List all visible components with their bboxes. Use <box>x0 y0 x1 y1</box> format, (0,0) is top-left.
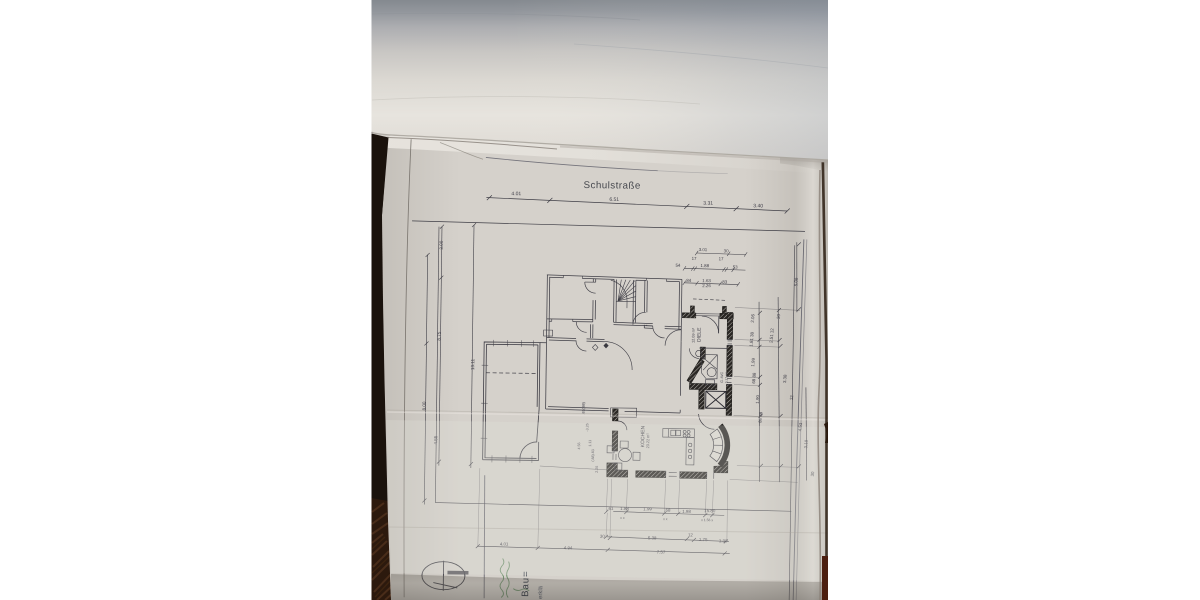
svg-text:4.01: 4.01 <box>511 191 521 197</box>
svg-text:3.40: 3.40 <box>753 203 763 209</box>
svg-text:Schulstraße: Schulstraße <box>583 180 640 192</box>
svg-text:3.01: 3.01 <box>699 247 708 252</box>
svg-text:5.17 m²: 5.17 m² <box>724 372 728 383</box>
svg-text:DIELE: DIELE <box>697 327 703 342</box>
svg-text:8.00: 8.00 <box>422 401 427 410</box>
svg-text:5.09: 5.09 <box>793 277 799 286</box>
svg-text:84: 84 <box>686 278 692 283</box>
svg-text:3.00: 3.00 <box>439 240 444 249</box>
svg-text:G.-WC: G.-WC <box>720 371 724 382</box>
svg-text:1.99: 1.99 <box>755 394 761 403</box>
svg-text:2.06: 2.06 <box>750 313 756 322</box>
svg-text:17: 17 <box>692 256 698 261</box>
svg-text:3.38: 3.38 <box>782 374 788 383</box>
svg-text:.81(.88): .81(.88) <box>582 402 586 414</box>
svg-text:8.75: 8.75 <box>437 331 442 340</box>
svg-text:1.99: 1.99 <box>750 357 756 366</box>
svg-text:17: 17 <box>719 256 725 261</box>
svg-text:13.11: 13.11 <box>470 358 475 370</box>
svg-text:6.51: 6.51 <box>609 197 619 203</box>
svg-text:3.31: 3.31 <box>703 201 713 207</box>
svg-text:83: 83 <box>722 279 728 284</box>
svg-text:.53: .53 <box>731 264 738 269</box>
svg-text:30: 30 <box>724 248 730 253</box>
svg-text:1.88: 1.88 <box>700 263 709 268</box>
svg-text:2.26: 2.26 <box>702 283 711 288</box>
svg-text:12.09 m²: 12.09 m² <box>691 327 695 343</box>
svg-text:54: 54 <box>675 263 681 268</box>
svg-text:68 88: 68 88 <box>751 372 757 384</box>
